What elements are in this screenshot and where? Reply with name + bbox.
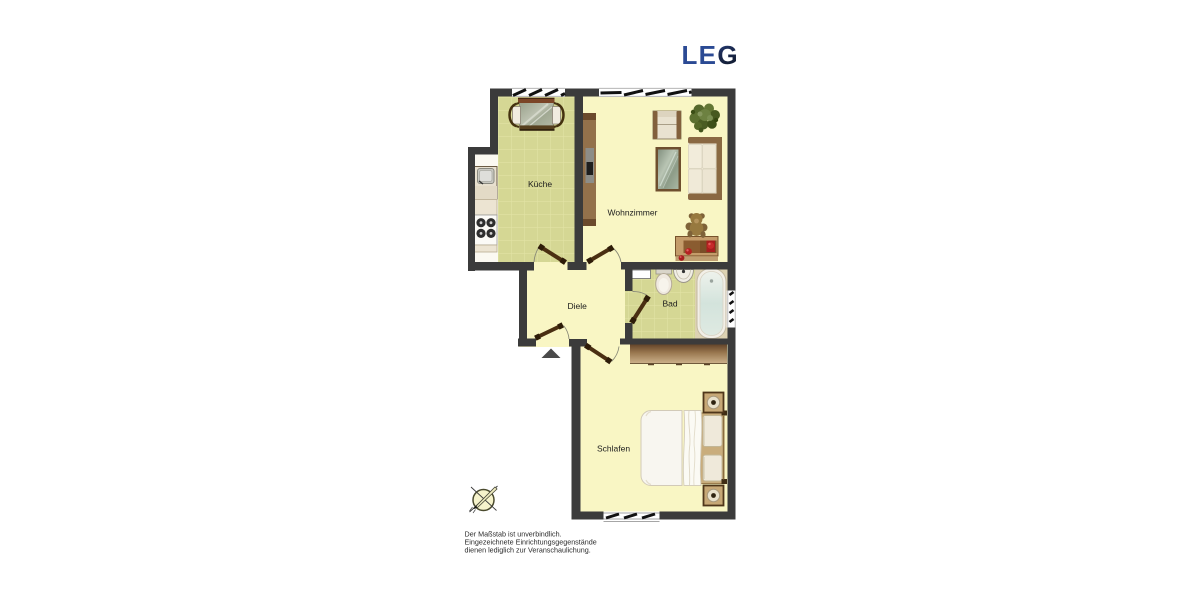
svg-text:Küche: Küche (528, 179, 552, 189)
svg-text:Bad: Bad (663, 299, 678, 309)
svg-text:Diele: Diele (568, 301, 588, 311)
svg-text:dienen lediglich zur Veranscha: dienen lediglich zur Veranschaulichung. (465, 546, 591, 555)
svg-text:Schlafen: Schlafen (597, 444, 630, 454)
svg-text:Wohnzimmer: Wohnzimmer (608, 208, 658, 218)
svg-text:LEG: LEG (682, 40, 739, 70)
